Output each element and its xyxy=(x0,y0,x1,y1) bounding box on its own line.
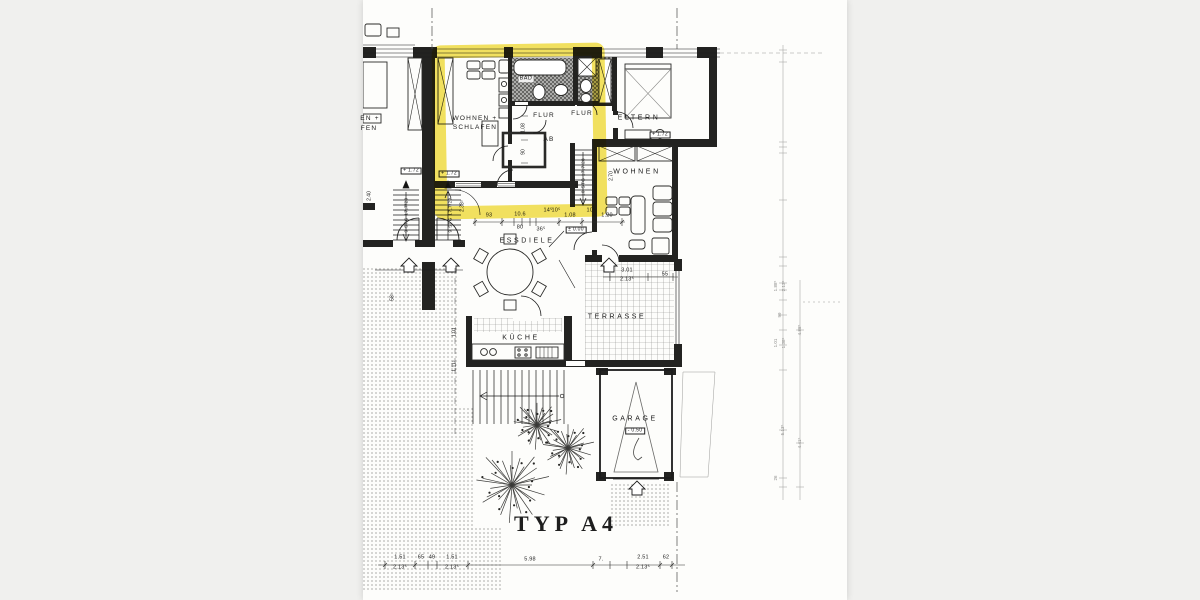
room-label-kueche: KÜCHE xyxy=(502,335,540,342)
dim-faint: 1.38⁵ xyxy=(782,338,787,349)
dim: 62 xyxy=(663,555,670,561)
level-marker: - 0.50 xyxy=(625,428,645,435)
level-marker: + 1.72 xyxy=(650,132,671,139)
plan-title: TYP A4 xyxy=(514,513,618,535)
level-marker: ± 0.00 xyxy=(566,227,587,234)
dim: 1.01 xyxy=(453,327,458,337)
screenshot-stage: WOHNEN +SCHLAFENBADFLURABFLURELTERNWOHNE… xyxy=(0,0,1200,600)
dim: 2.13⁵ xyxy=(620,277,634,283)
dim-faint: 26 xyxy=(774,475,779,480)
marker-highlight xyxy=(431,43,607,220)
cut-label-neighbor-2: FEN xyxy=(361,126,378,133)
dim-faint: 4.88⁵ xyxy=(798,325,803,336)
room-label-wohnen-right: WOHNEN xyxy=(613,169,661,176)
room-label-garage: GARAGE xyxy=(612,416,658,423)
dim: 2.70 xyxy=(610,171,615,181)
room-label-essdiele: ESSDIELE xyxy=(499,238,554,245)
dim: 80 xyxy=(517,225,524,231)
dim: 2.13⁵ xyxy=(393,565,407,571)
level-marker: + 1.72 xyxy=(401,168,422,175)
dim: 7. xyxy=(599,557,604,563)
dim-faint: 2.13⁵ xyxy=(782,281,787,292)
dim-faint: 5.13⁵ xyxy=(781,425,786,436)
dim: 1.11⁵ xyxy=(453,360,458,371)
room-label-eltern: ELTERN xyxy=(618,115,661,122)
dim-faint: 1.88⁵ xyxy=(774,281,779,292)
dim: 2.51 xyxy=(637,555,649,561)
dim-faint: 1.01 xyxy=(774,339,779,348)
dim: 3.01 xyxy=(621,268,633,274)
dim: 5.98 xyxy=(524,557,536,563)
dim: 49 xyxy=(429,555,436,561)
dim: 36⁵ xyxy=(537,227,546,233)
dim: 58⁵ xyxy=(391,293,396,301)
dim: 55 xyxy=(662,272,669,278)
dim: 2.13⁵ xyxy=(636,565,650,571)
floor-plan: WOHNEN +SCHLAFENBADFLURABFLURELTERNWOHNE… xyxy=(363,0,847,600)
dim-faint: 4.41⁵ xyxy=(798,438,803,449)
stair-note: 9 STG 17,7/29 xyxy=(405,197,410,232)
dim: 1.51 xyxy=(394,555,406,561)
dim: 2.13⁵ xyxy=(445,565,459,571)
dim: 2.40 xyxy=(368,191,373,201)
dim-faint: 99 xyxy=(778,312,783,317)
dim: 1.51 xyxy=(446,555,458,561)
room-label-terrasse: TERRASSE xyxy=(588,314,647,321)
dim: 65 xyxy=(418,555,425,561)
cut-label-neighbor-1: EN + xyxy=(360,116,379,123)
